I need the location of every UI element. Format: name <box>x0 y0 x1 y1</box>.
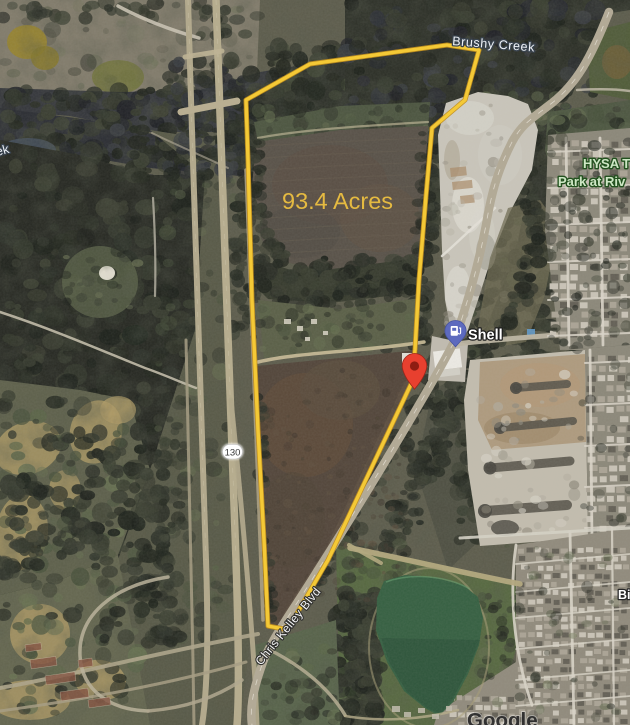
svg-text:Google: Google <box>467 709 538 725</box>
svg-text:130: 130 <box>225 448 241 459</box>
svg-text:Park at Riv: Park at Riv <box>558 174 626 189</box>
svg-text:HYSA T: HYSA T <box>583 156 630 171</box>
svg-text:93.4 Acres: 93.4 Acres <box>282 188 393 214</box>
svg-text:Shell: Shell <box>468 328 503 344</box>
svg-text:Bi: Bi <box>618 588 630 602</box>
